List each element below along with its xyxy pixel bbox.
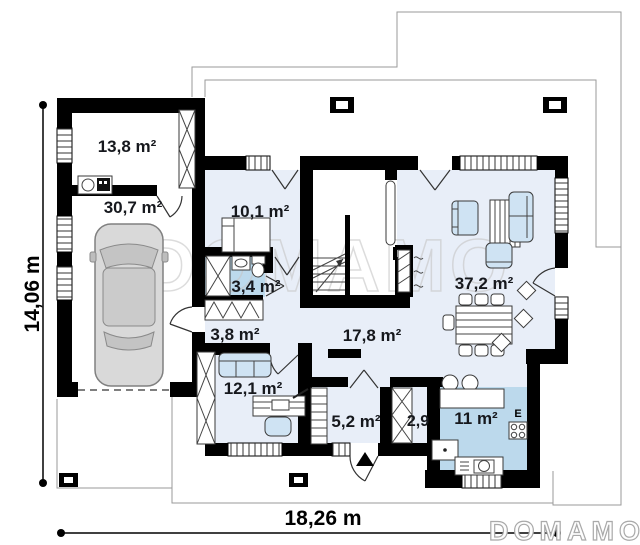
watermark-corner: DOMAMO (489, 516, 640, 545)
toilet-bowl (252, 263, 264, 277)
wall (555, 233, 568, 268)
wall (378, 443, 427, 456)
laptop (272, 400, 289, 410)
window (460, 156, 537, 170)
cabinet-knob (443, 448, 447, 452)
window (57, 266, 72, 300)
wall (57, 300, 72, 382)
wall (452, 156, 460, 170)
shoe-cabinet (311, 388, 327, 444)
window (555, 178, 568, 233)
office-sofa (219, 353, 271, 377)
appliance-label: E (514, 408, 521, 420)
window (57, 128, 72, 163)
dimension-height-label: 14,06 m (21, 255, 44, 332)
window (555, 297, 568, 319)
wardrobe-office (197, 352, 215, 444)
window (57, 216, 72, 252)
outside-patch (540, 364, 556, 444)
dining-chair (443, 315, 454, 330)
label-pantry: 2,9 (407, 413, 429, 430)
shaft-utility (179, 110, 195, 188)
wall (555, 319, 568, 349)
label-hall: 17,8 m² (343, 326, 402, 345)
car-windshield (100, 244, 158, 268)
wall (380, 387, 393, 443)
wall (170, 382, 192, 397)
chimney-core (549, 101, 561, 109)
wall (385, 170, 397, 180)
wall (526, 349, 568, 364)
wall (57, 252, 72, 266)
stair-tall-door (386, 181, 395, 245)
wall (57, 113, 72, 128)
bar-counter (440, 389, 504, 408)
desk-chair (265, 417, 291, 436)
car (90, 224, 168, 386)
label-bedroom: 10,1 m² (231, 202, 290, 221)
tv-bench (328, 349, 361, 358)
car-mirror (90, 252, 96, 262)
boiler-led (104, 181, 107, 184)
dimension-dot (57, 529, 65, 537)
wall (427, 387, 440, 475)
label-living-room: 37,2 m² (455, 274, 514, 293)
utility-fixtures (78, 176, 112, 194)
wall (300, 295, 410, 308)
wall (502, 470, 540, 488)
dining-chair (475, 345, 488, 356)
dimension-width-label: 18,26 m (284, 507, 361, 530)
wall (312, 377, 348, 387)
dining-chair (459, 294, 472, 305)
wall (390, 377, 443, 387)
label-vestibule: 5,2 m² (331, 412, 380, 431)
door-garage-corridor (170, 307, 192, 332)
dining-chair (459, 345, 472, 356)
label-utility-room: 13,8 m² (98, 137, 157, 156)
wall (205, 156, 246, 170)
label-bathroom: 3,4 m² (231, 277, 280, 296)
floor-plan: DOMAMO (0, 0, 640, 545)
dimension-width: 18,26 m (57, 507, 561, 537)
wall (205, 443, 228, 456)
window (246, 156, 270, 170)
porch-pillar-core (294, 477, 303, 483)
entrance-arrow-icon (356, 452, 374, 466)
wall (57, 382, 78, 397)
porch-pillar-core (64, 477, 73, 483)
chimney-core (336, 101, 348, 109)
sofa (509, 192, 533, 242)
boiler-panel (97, 178, 110, 191)
wall (555, 156, 568, 178)
dining-chair (475, 294, 488, 305)
boiler-led (99, 181, 102, 184)
stair-spine-wall (345, 215, 350, 295)
wall (300, 170, 313, 298)
dimension-dot (39, 101, 47, 109)
wall (300, 156, 418, 170)
car-mirror (162, 252, 168, 262)
wall (311, 443, 332, 456)
dimension-dot (39, 479, 47, 487)
car-roof (103, 268, 155, 326)
label-garage: 30,7 m² (104, 198, 163, 217)
wall (527, 364, 540, 488)
wardrobe-corridor (205, 300, 263, 320)
dining-chair (491, 294, 504, 305)
dimension-height: 14,06 m (21, 101, 47, 487)
window (228, 443, 282, 456)
label-office: 12,1 m² (224, 379, 283, 398)
armchair (452, 201, 478, 235)
armchair-2 (486, 243, 512, 268)
bed (222, 218, 270, 252)
bedroom-furniture (222, 218, 270, 252)
label-kitchen: 11 m² (454, 409, 498, 428)
window (332, 443, 350, 456)
label-corridor: 3,8 m² (210, 325, 259, 344)
